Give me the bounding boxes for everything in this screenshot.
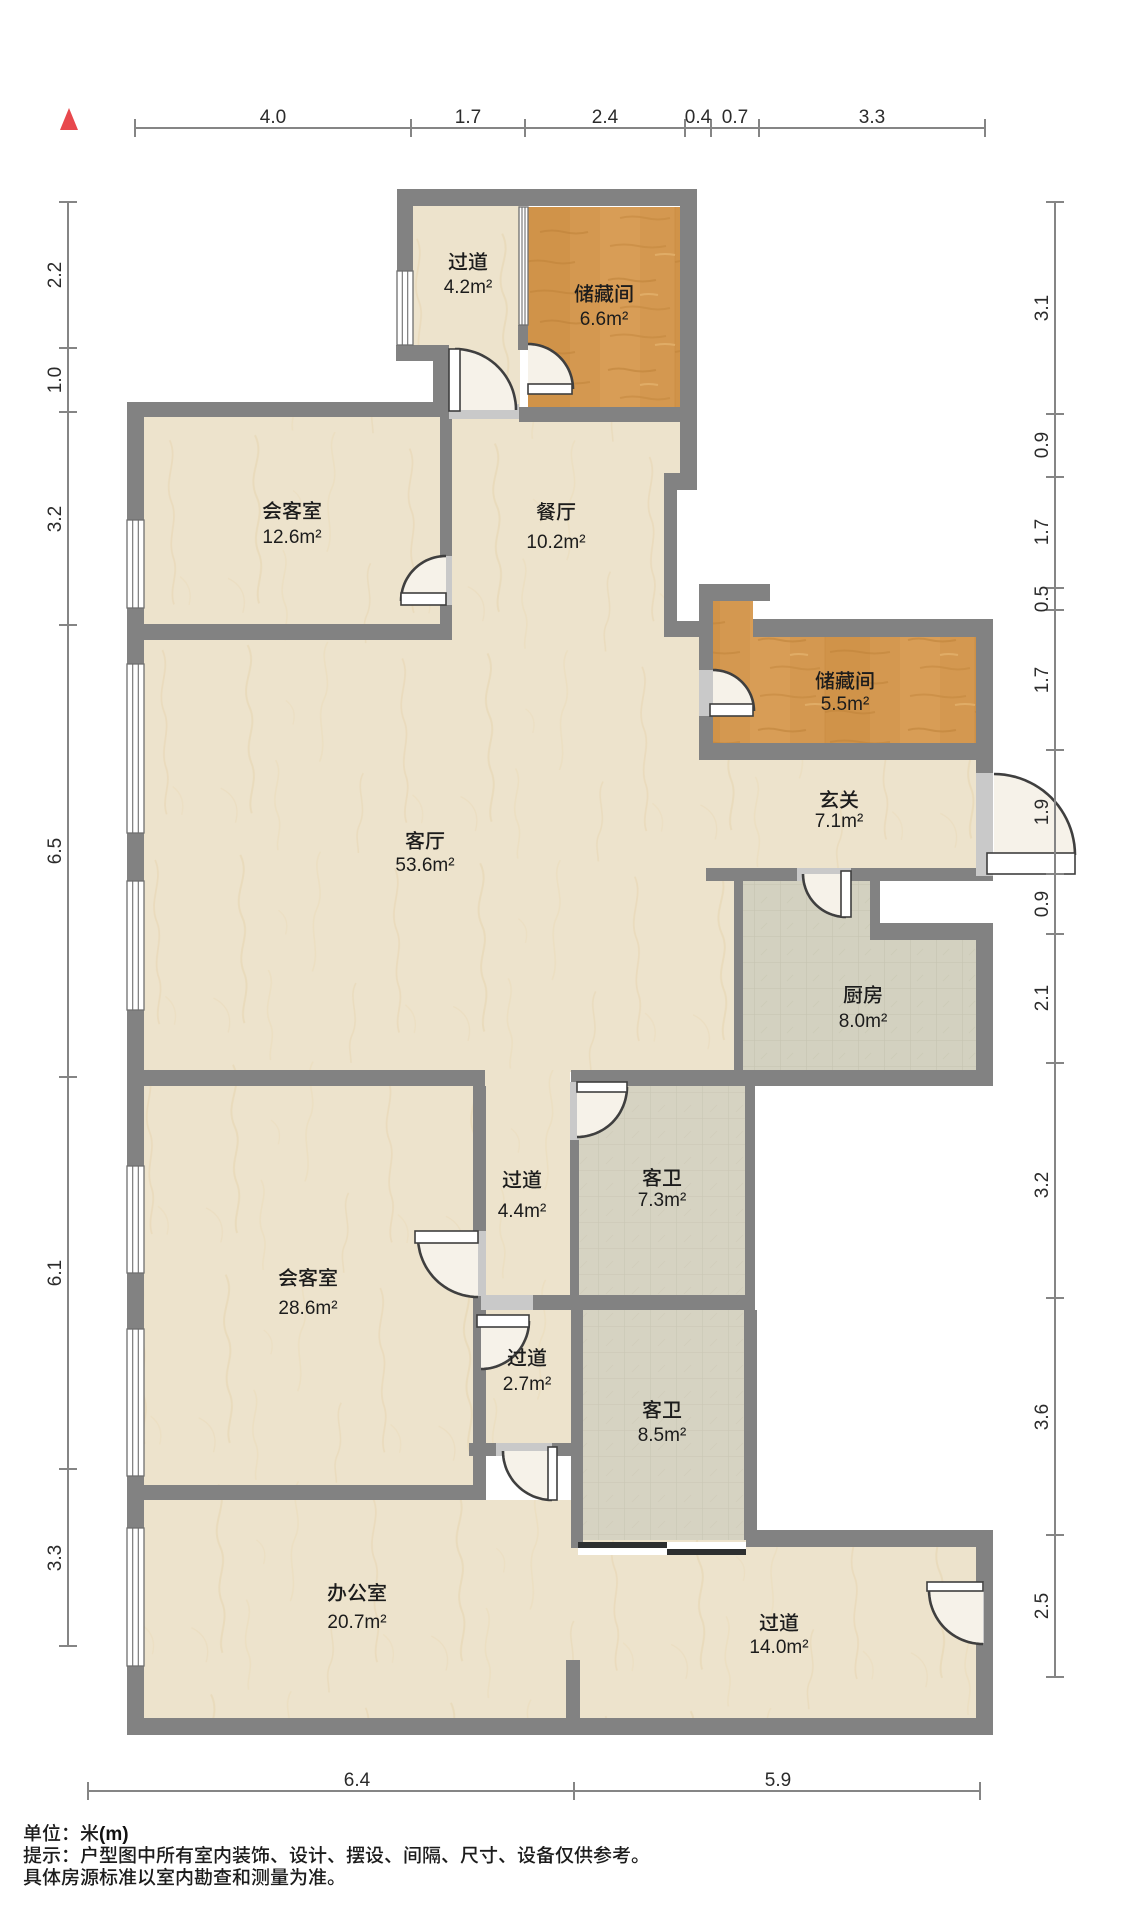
svg-text:2.5: 2.5	[1032, 1593, 1053, 1619]
svg-text:1.7: 1.7	[1032, 519, 1053, 545]
svg-text:12.6m²: 12.6m²	[262, 527, 321, 548]
svg-text:3.1: 3.1	[1032, 295, 1053, 321]
svg-text:8.0m²: 8.0m²	[839, 1011, 888, 1032]
svg-text:4.4m²: 4.4m²	[498, 1201, 547, 1222]
svg-text:28.6m²: 28.6m²	[278, 1298, 337, 1319]
svg-text:0.5: 0.5	[1032, 586, 1053, 612]
svg-text:3.3: 3.3	[859, 107, 885, 128]
svg-text:53.6m²: 53.6m²	[395, 855, 454, 876]
svg-text:8.5m²: 8.5m²	[638, 1425, 687, 1446]
svg-text:2.1: 2.1	[1032, 985, 1053, 1011]
svg-text:14.0m²: 14.0m²	[749, 1637, 808, 1658]
svg-text:6.6m²: 6.6m²	[580, 309, 629, 330]
svg-text:2.4: 2.4	[592, 107, 619, 128]
svg-text:3.3: 3.3	[45, 1545, 66, 1571]
svg-text:20.7m²: 20.7m²	[327, 1612, 386, 1633]
svg-text:3.2: 3.2	[45, 506, 66, 532]
svg-text:1.0: 1.0	[45, 367, 66, 393]
svg-text:(m): (m)	[99, 1824, 129, 1845]
svg-text:2.2: 2.2	[45, 262, 66, 288]
svg-text:5.9: 5.9	[765, 1770, 791, 1791]
svg-text:0.4: 0.4	[685, 107, 712, 128]
svg-text:1.7: 1.7	[455, 107, 481, 128]
svg-text:10.2m²: 10.2m²	[526, 532, 585, 553]
svg-text:6.5: 6.5	[45, 838, 66, 864]
svg-text:2.7m²: 2.7m²	[503, 1374, 552, 1395]
svg-text:6.4: 6.4	[344, 1770, 371, 1791]
svg-text:3.6: 3.6	[1032, 1404, 1053, 1430]
svg-text:7.3m²: 7.3m²	[638, 1190, 687, 1211]
svg-text:3.2: 3.2	[1032, 1172, 1053, 1198]
svg-text:7.1m²: 7.1m²	[815, 811, 864, 832]
svg-text:0.9: 0.9	[1032, 891, 1053, 917]
svg-text:6.1: 6.1	[45, 1260, 66, 1286]
svg-text:0.7: 0.7	[722, 107, 748, 128]
svg-text:5.5m²: 5.5m²	[821, 694, 870, 715]
svg-text:4.2m²: 4.2m²	[444, 277, 493, 298]
svg-text:1.7: 1.7	[1032, 667, 1053, 693]
svg-text:0.9: 0.9	[1032, 432, 1053, 458]
svg-text:4.0: 4.0	[260, 107, 286, 128]
svg-text:1.9: 1.9	[1032, 799, 1053, 825]
